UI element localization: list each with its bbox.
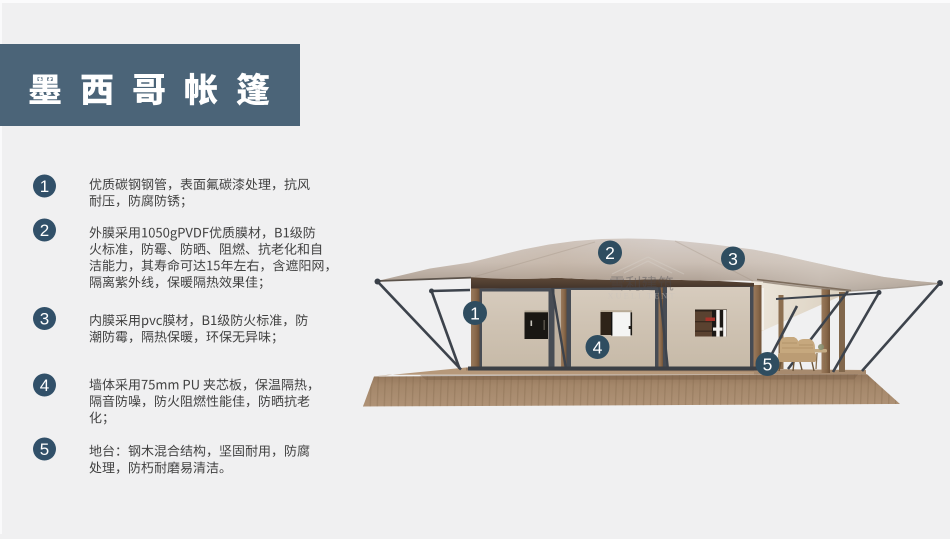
svg-text:3: 3 xyxy=(728,249,738,269)
svg-text:5: 5 xyxy=(40,440,49,459)
svg-text:3: 3 xyxy=(40,310,49,329)
svg-text:2: 2 xyxy=(605,243,615,263)
svg-text:XUELI TENT: XUELI TENT xyxy=(607,291,676,301)
svg-text:1: 1 xyxy=(470,304,480,324)
svg-text:1: 1 xyxy=(40,177,49,196)
svg-text:4: 4 xyxy=(593,338,603,358)
svg-text:4: 4 xyxy=(40,376,49,395)
svg-text:5: 5 xyxy=(763,355,773,375)
svg-text:2: 2 xyxy=(40,221,49,240)
